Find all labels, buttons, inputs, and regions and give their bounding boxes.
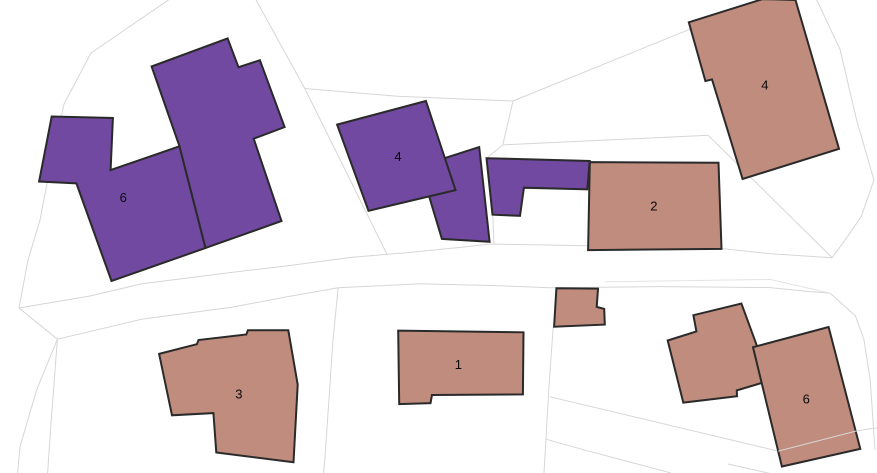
svg-text:3: 3 (235, 387, 242, 402)
svg-text:1: 1 (455, 357, 462, 372)
svg-text:2: 2 (650, 198, 657, 213)
svg-text:6: 6 (120, 190, 127, 205)
svg-text:4: 4 (761, 78, 768, 93)
svg-text:6: 6 (803, 392, 810, 407)
svg-text:4: 4 (394, 149, 401, 164)
